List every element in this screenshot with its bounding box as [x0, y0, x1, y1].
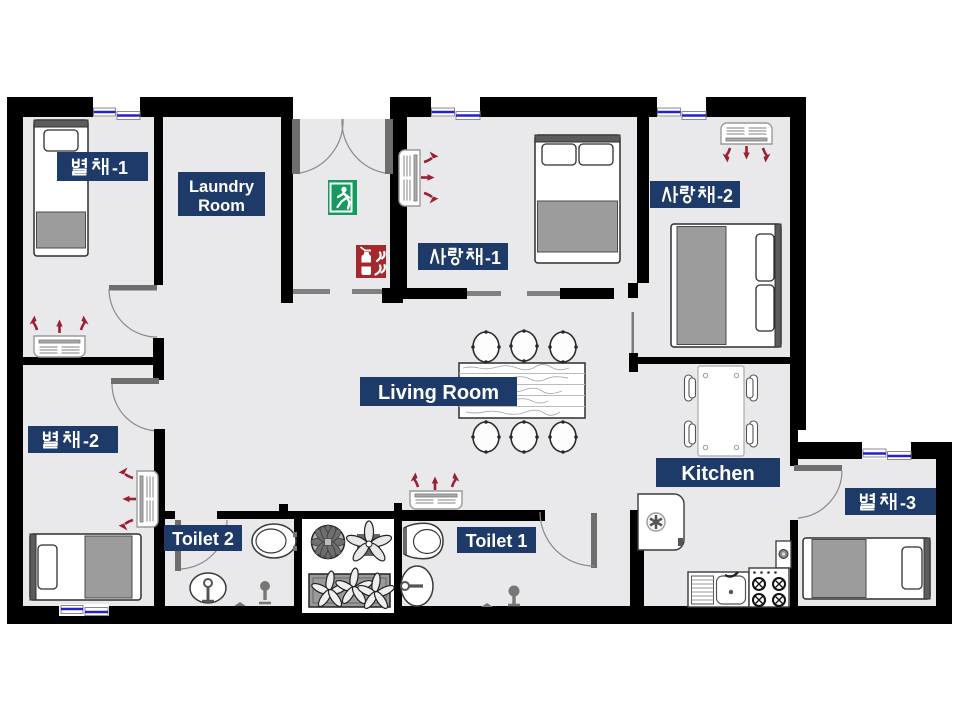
svg-text:-2: -2 [83, 431, 99, 451]
svg-text:-3: -3 [900, 493, 916, 513]
svg-text:Laundry: Laundry [189, 178, 255, 196]
svg-text:-1: -1 [112, 158, 128, 178]
svg-text:Room: Room [198, 197, 245, 215]
svg-text:Living Room: Living Room [378, 382, 499, 404]
svg-text:-2: -2 [717, 186, 733, 206]
svg-text:Kitchen: Kitchen [681, 463, 754, 485]
svg-text:-1: -1 [485, 248, 501, 268]
svg-text:Toilet 2: Toilet 2 [172, 529, 234, 549]
svg-text:Toilet 1: Toilet 1 [466, 531, 528, 551]
